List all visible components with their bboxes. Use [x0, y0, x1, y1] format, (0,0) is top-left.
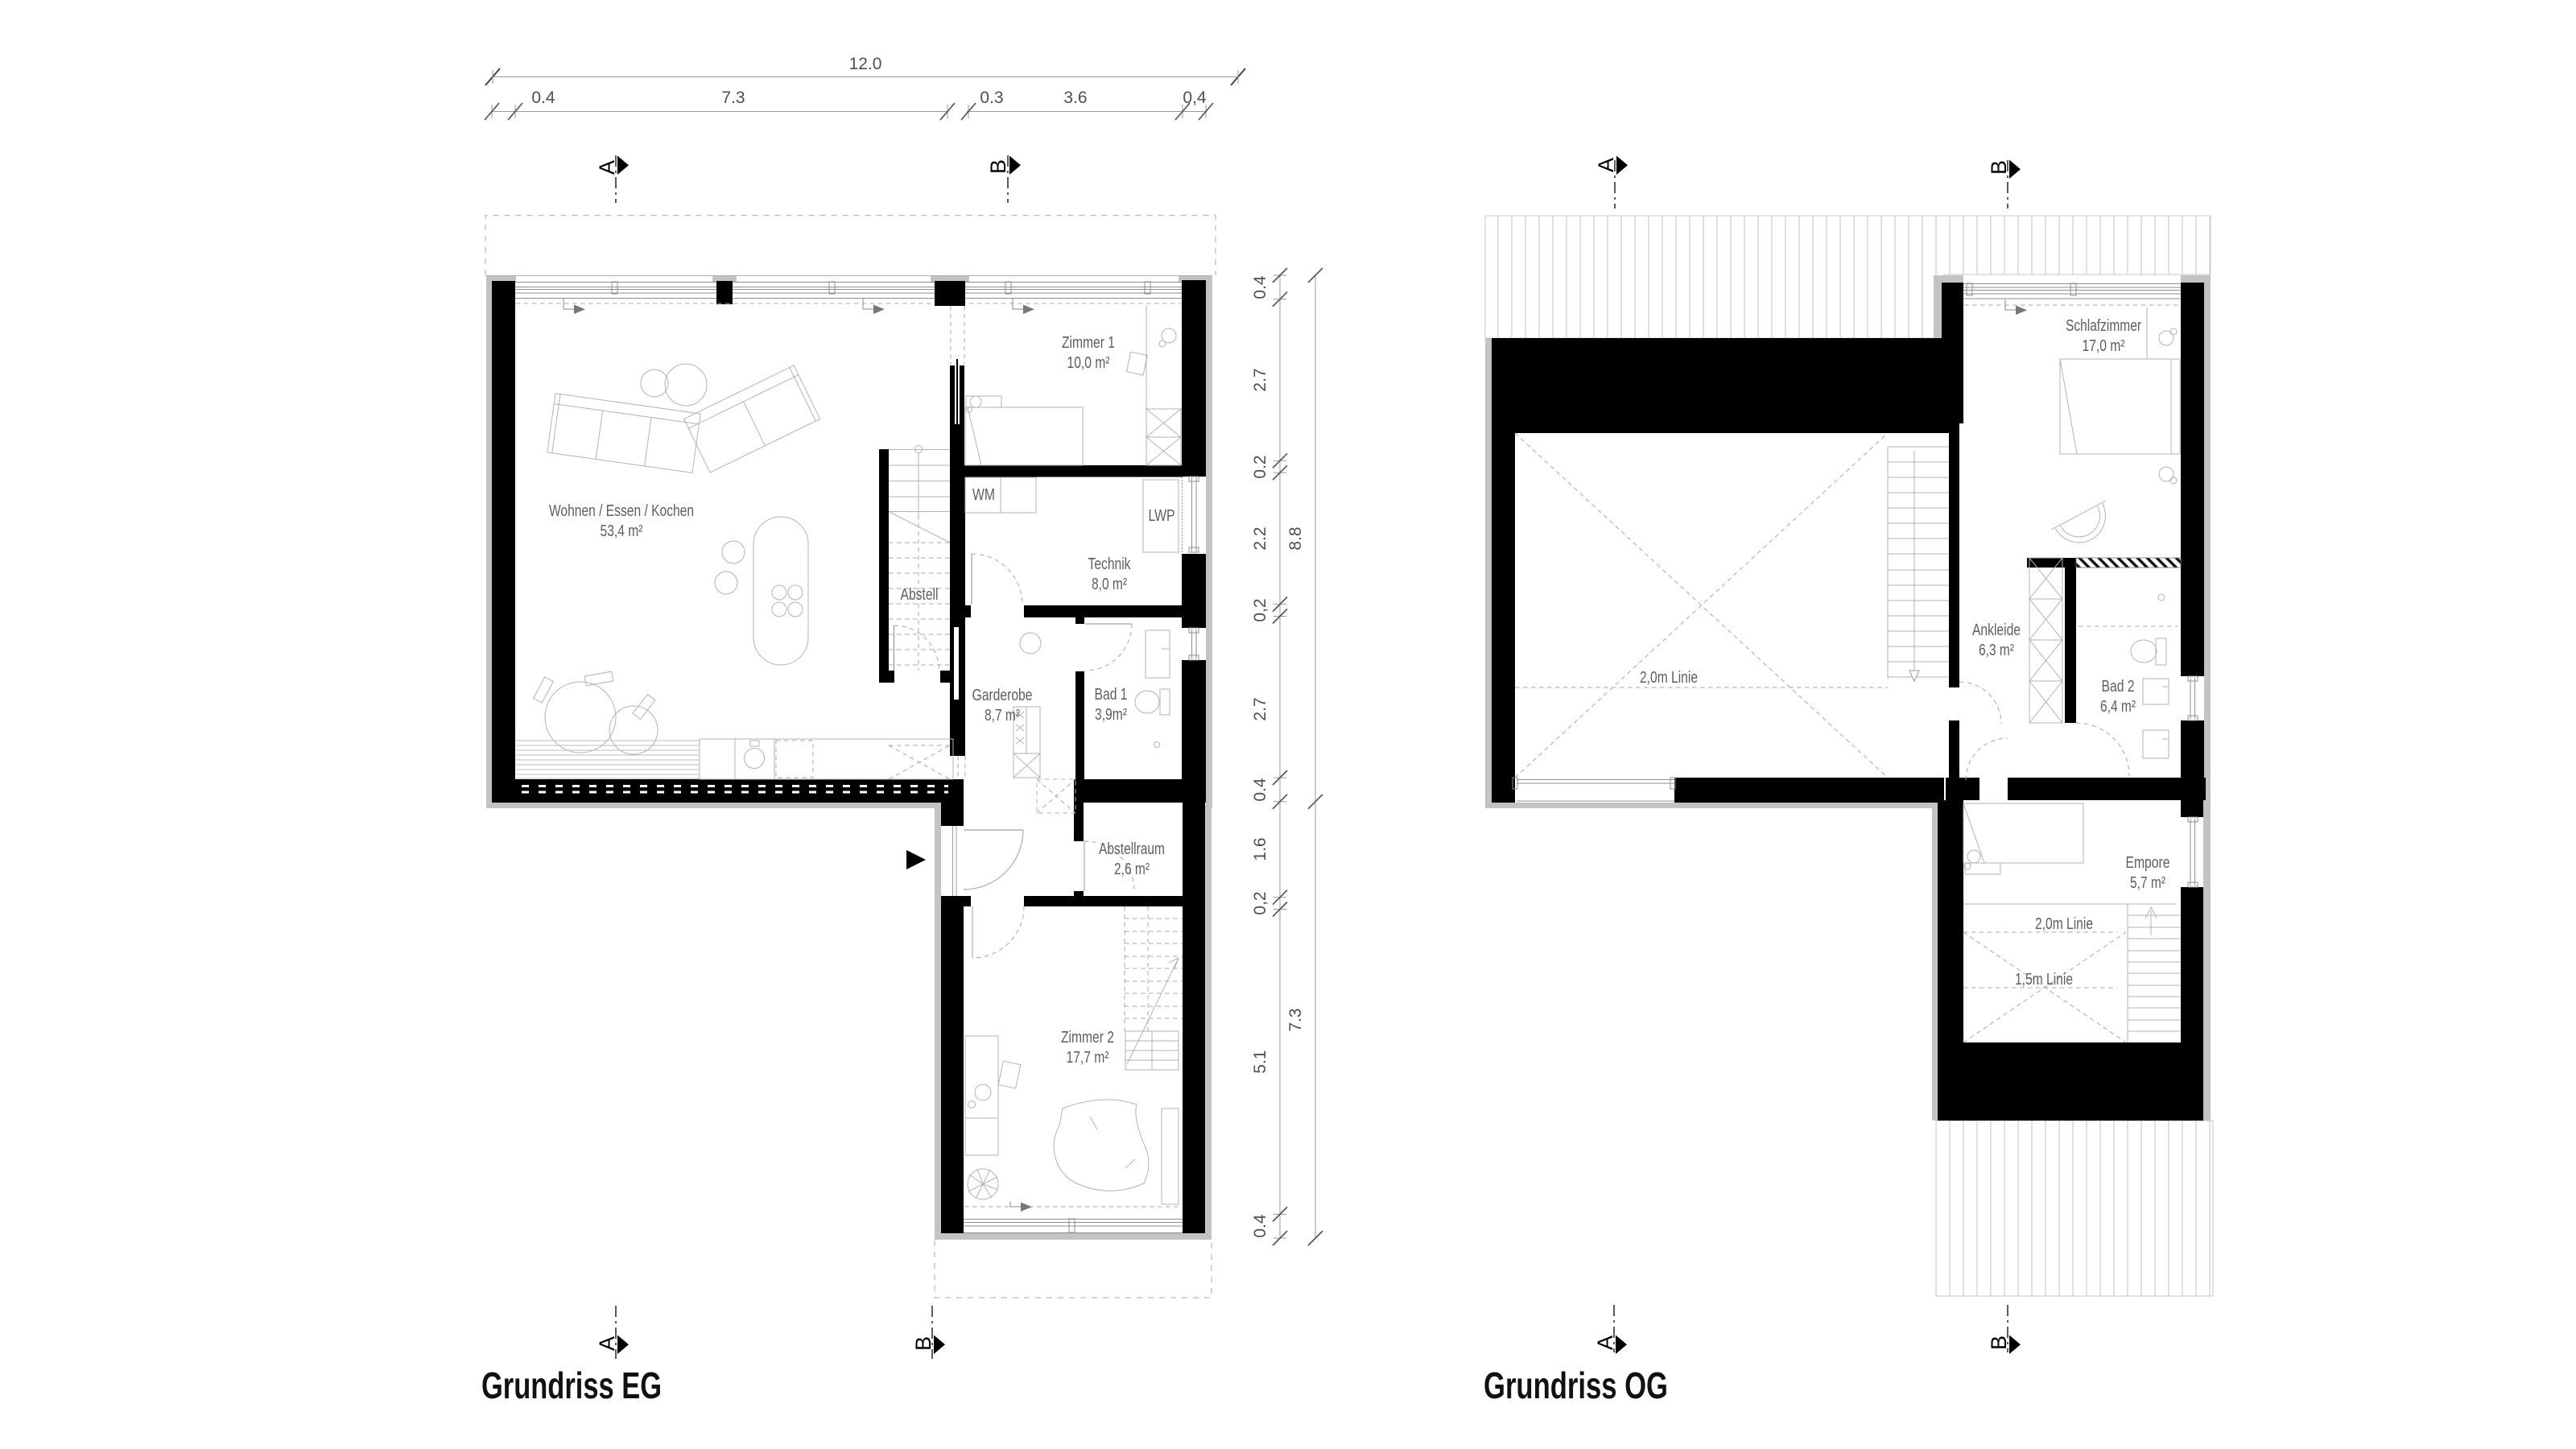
- svg-text:B: B: [986, 159, 1010, 174]
- svg-text:5.1: 5.1: [1251, 1050, 1269, 1073]
- svg-text:12.0: 12.0: [849, 55, 882, 73]
- svg-text:0.4: 0.4: [1251, 778, 1269, 802]
- svg-text:17,7 m²: 17,7 m²: [1067, 1049, 1109, 1067]
- svg-text:B: B: [1987, 1335, 2011, 1350]
- svg-text:LWP: LWP: [1149, 507, 1175, 525]
- svg-text:2.7: 2.7: [1251, 697, 1269, 720]
- svg-text:A: A: [1594, 158, 1618, 172]
- svg-text:A: A: [595, 1336, 619, 1351]
- svg-text:2,6 m²: 2,6 m²: [1114, 861, 1150, 878]
- svg-text:3.6: 3.6: [1063, 89, 1087, 107]
- svg-text:0.3: 0.3: [980, 89, 1003, 107]
- svg-text:5,7 m²: 5,7 m²: [2130, 874, 2165, 892]
- svg-text:0.4: 0.4: [1251, 275, 1269, 299]
- svg-text:3,9m²: 3,9m²: [1095, 706, 1127, 724]
- svg-text:2,0m Linie: 2,0m Linie: [2035, 915, 2093, 933]
- svg-text:0,4: 0,4: [1183, 89, 1207, 107]
- svg-text:Empore: Empore: [2126, 854, 2170, 872]
- svg-text:Zimmer 2: Zimmer 2: [1061, 1029, 1114, 1046]
- svg-text:6,3 m²: 6,3 m²: [1979, 642, 2014, 659]
- svg-text:1.6: 1.6: [1251, 837, 1269, 861]
- svg-text:7.3: 7.3: [1286, 1008, 1305, 1031]
- svg-text:8.8: 8.8: [1286, 526, 1305, 550]
- svg-text:7.3: 7.3: [721, 89, 745, 107]
- svg-text:8,7 m²: 8,7 m²: [985, 707, 1020, 724]
- svg-text:0.4: 0.4: [1251, 1214, 1269, 1238]
- svg-text:A: A: [595, 160, 619, 175]
- svg-text:2.7: 2.7: [1251, 368, 1269, 391]
- svg-text:Grundriss OG: Grundriss OG: [1484, 1364, 1668, 1406]
- svg-text:6,4 m²: 6,4 m²: [2100, 698, 2136, 716]
- svg-text:A: A: [1593, 1335, 1617, 1350]
- svg-text:8,0 m²: 8,0 m²: [1092, 576, 1127, 593]
- svg-text:1,5m Linie: 1,5m Linie: [2015, 971, 2073, 989]
- svg-text:Technik: Technik: [1088, 555, 1132, 573]
- svg-text:B: B: [911, 1336, 935, 1351]
- svg-text:0.2: 0.2: [1251, 455, 1269, 478]
- svg-text:Abstell: Abstell: [901, 586, 939, 604]
- svg-text:Bad 1: Bad 1: [1095, 686, 1128, 704]
- svg-text:17,0 m²: 17,0 m²: [2083, 337, 2125, 355]
- svg-text:Wohnen / Essen / Kochen: Wohnen / Essen / Kochen: [549, 502, 694, 520]
- svg-text:0.4: 0.4: [531, 89, 555, 107]
- svg-text:Abstellraum: Abstellraum: [1099, 840, 1165, 858]
- svg-text:Schlafzimmer: Schlafzimmer: [2066, 317, 2141, 335]
- svg-text:2.2: 2.2: [1251, 526, 1269, 550]
- svg-text:WM: WM: [972, 486, 995, 504]
- svg-text:0,2: 0,2: [1251, 598, 1269, 621]
- svg-text:Bad 2: Bad 2: [2102, 678, 2135, 696]
- svg-text:2,0m Linie: 2,0m Linie: [1640, 669, 1698, 687]
- svg-text:Garderobe: Garderobe: [972, 687, 1033, 704]
- svg-text:Zimmer 1: Zimmer 1: [1062, 334, 1115, 352]
- svg-text:Ankleide: Ankleide: [1972, 621, 2021, 639]
- svg-text:Grundriss EG: Grundriss EG: [481, 1364, 662, 1406]
- svg-text:0,2: 0,2: [1251, 891, 1269, 914]
- svg-text:B: B: [1987, 160, 2011, 175]
- svg-text:10,0 m²: 10,0 m²: [1067, 354, 1110, 372]
- svg-text:53,4 m²: 53,4 m²: [601, 522, 643, 540]
